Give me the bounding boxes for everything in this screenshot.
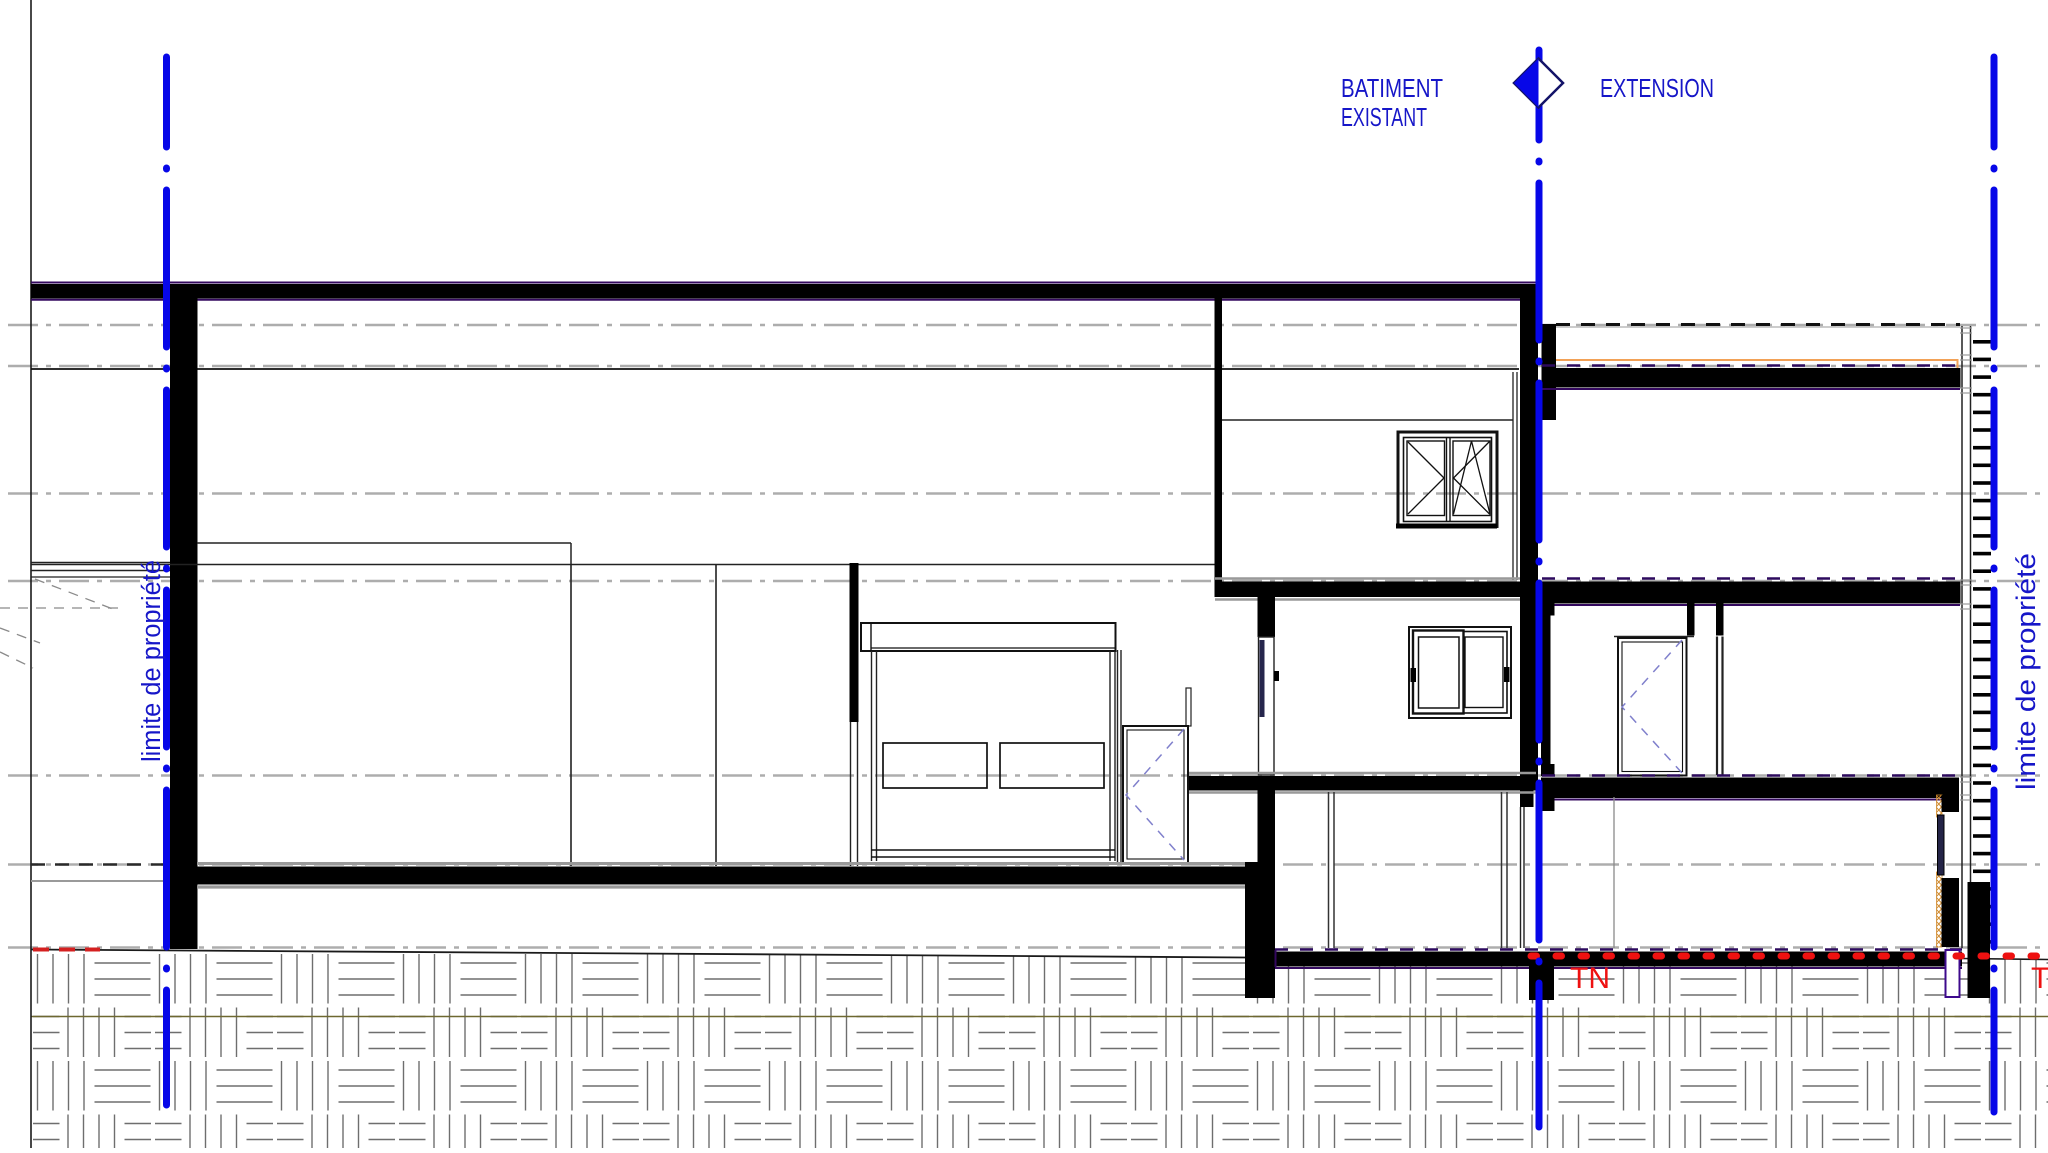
svg-text:TN: TN <box>1570 962 1610 995</box>
svg-text:limite de propriété: limite de propriété <box>138 560 166 762</box>
svg-text:EXISTANT: EXISTANT <box>1341 102 1427 132</box>
svg-text:BATIMENT: BATIMENT <box>1341 73 1443 103</box>
svg-text:EXTENSION: EXTENSION <box>1600 73 1714 103</box>
svg-text:TN: TN <box>2031 962 2048 995</box>
svg-text:limite de propriété: limite de propriété <box>2011 553 2041 790</box>
